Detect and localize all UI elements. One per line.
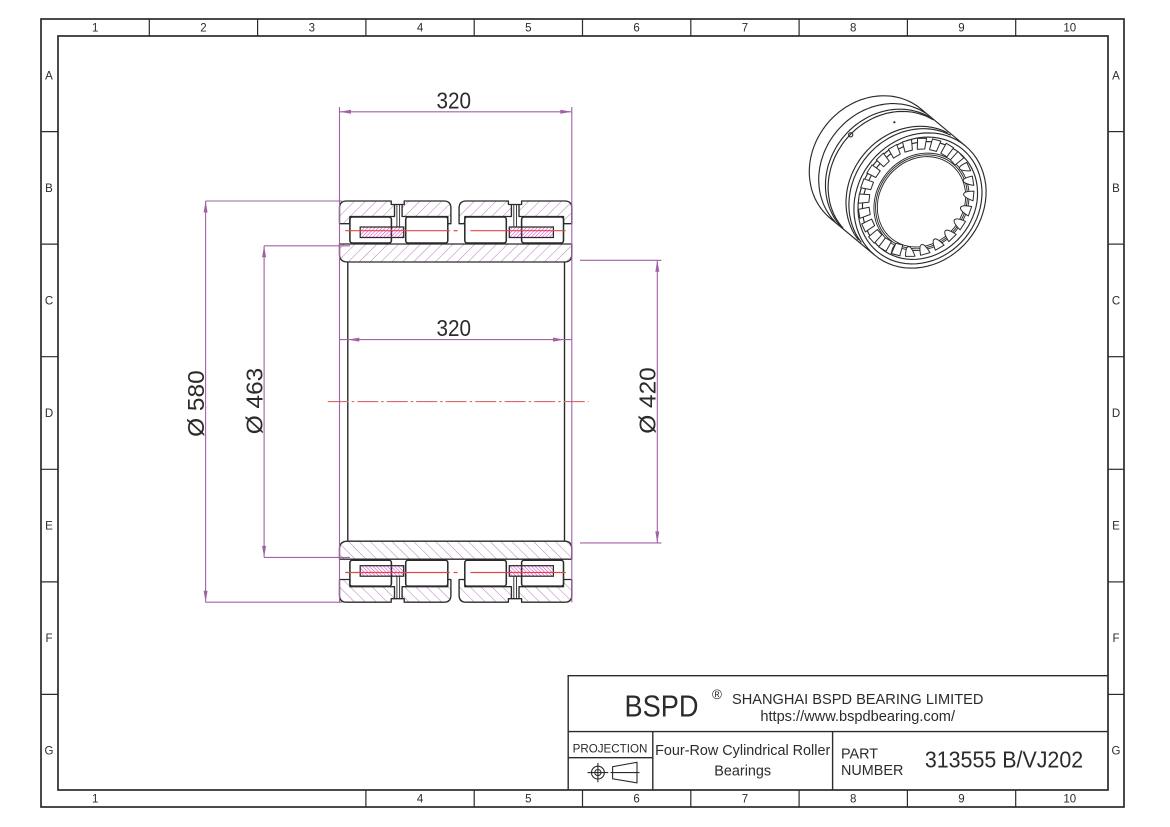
svg-text:7: 7 — [742, 794, 748, 806]
svg-text:NUMBER: NUMBER — [841, 763, 903, 779]
svg-text:6: 6 — [633, 23, 639, 35]
svg-text:G: G — [1112, 746, 1121, 758]
svg-text:Ø 580: Ø 580 — [183, 370, 209, 437]
svg-text:C: C — [1112, 295, 1120, 307]
svg-text:B: B — [1112, 183, 1120, 195]
svg-text:320: 320 — [436, 88, 471, 114]
svg-text:SHANGHAI BSPD BEARING LIMITED: SHANGHAI BSPD BEARING LIMITED — [732, 692, 983, 708]
svg-text:D: D — [1112, 408, 1120, 420]
svg-text:8: 8 — [850, 794, 856, 806]
svg-text:Bearings: Bearings — [714, 764, 771, 780]
svg-text:E: E — [45, 521, 53, 533]
svg-text:Ø 463: Ø 463 — [241, 368, 267, 435]
svg-text:Ø 420: Ø 420 — [635, 367, 661, 434]
svg-text:320: 320 — [436, 315, 471, 341]
svg-text:9: 9 — [958, 794, 964, 806]
svg-text:A: A — [45, 70, 53, 82]
svg-text:https://www.bspdbearing.com/: https://www.bspdbearing.com/ — [760, 709, 956, 725]
svg-text:6: 6 — [633, 794, 639, 806]
svg-text:F: F — [1112, 633, 1119, 645]
svg-text:F: F — [45, 633, 52, 645]
svg-text:A: A — [1112, 70, 1120, 82]
svg-text:8: 8 — [850, 23, 856, 35]
svg-text:G: G — [45, 746, 54, 758]
svg-text:1: 1 — [92, 23, 98, 35]
svg-text:313555 B/VJ202: 313555 B/VJ202 — [925, 746, 1083, 772]
svg-text:B: B — [45, 183, 53, 195]
svg-text:PROJECTION: PROJECTION — [573, 743, 648, 756]
svg-text:1: 1 — [92, 794, 98, 806]
svg-text:E: E — [1112, 521, 1120, 533]
svg-text:PART: PART — [841, 747, 878, 763]
svg-text:10: 10 — [1063, 23, 1076, 35]
svg-text:4: 4 — [417, 794, 424, 806]
svg-text:9: 9 — [958, 23, 964, 35]
svg-text:Four-Row Cylindrical Roller: Four-Row Cylindrical Roller — [655, 743, 830, 759]
svg-text:®: ® — [712, 687, 722, 702]
svg-text:BSPD: BSPD — [625, 690, 699, 724]
svg-text:4: 4 — [417, 23, 424, 35]
svg-text:C: C — [45, 295, 53, 307]
svg-text:5: 5 — [525, 794, 531, 806]
svg-text:5: 5 — [525, 23, 531, 35]
svg-text:3: 3 — [309, 23, 315, 35]
svg-text:D: D — [45, 408, 53, 420]
svg-text:10: 10 — [1063, 794, 1076, 806]
svg-text:7: 7 — [742, 23, 748, 35]
svg-text:2: 2 — [200, 23, 206, 35]
